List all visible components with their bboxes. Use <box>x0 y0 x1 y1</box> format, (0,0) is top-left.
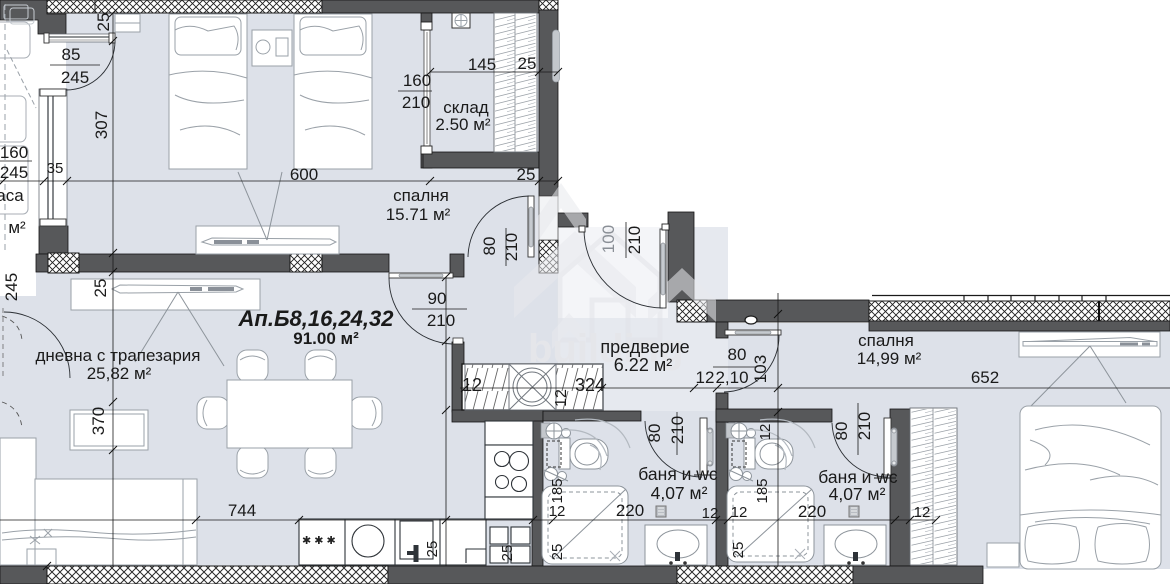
svg-text:12: 12 <box>702 505 719 522</box>
svg-text:12: 12 <box>696 368 715 387</box>
svg-text:25: 25 <box>518 54 537 73</box>
svg-text:спалня: спалня <box>393 186 449 205</box>
svg-text:25: 25 <box>499 545 516 562</box>
svg-text:145: 145 <box>468 55 496 74</box>
svg-text:2,10: 2,10 <box>715 368 748 387</box>
svg-text:25: 25 <box>424 541 441 558</box>
svg-text:25: 25 <box>94 13 113 32</box>
svg-text:220: 220 <box>616 501 644 520</box>
svg-text:25: 25 <box>730 542 747 559</box>
svg-text:100: 100 <box>599 225 618 253</box>
svg-text:80: 80 <box>832 422 851 441</box>
svg-text:210: 210 <box>402 93 430 112</box>
svg-text:25,82 м²: 25,82 м² <box>87 364 152 383</box>
svg-text:220: 220 <box>798 502 826 521</box>
svg-text:160: 160 <box>0 143 28 162</box>
svg-text:80: 80 <box>728 345 747 364</box>
svg-text:✱ ✱ ✱: ✱ ✱ ✱ <box>302 535 336 547</box>
svg-text:370: 370 <box>89 407 108 435</box>
svg-text:25: 25 <box>549 544 566 561</box>
svg-text:160: 160 <box>403 71 431 90</box>
svg-text:307: 307 <box>92 111 111 139</box>
svg-text:баня и wc: баня и wc <box>638 464 718 484</box>
svg-text:спалня: спалня <box>858 331 914 350</box>
svg-text:14,99 м²: 14,99 м² <box>857 349 922 368</box>
svg-text:80: 80 <box>480 237 499 256</box>
svg-text:35: 35 <box>47 160 64 177</box>
svg-text:652: 652 <box>971 368 999 387</box>
svg-text:12: 12 <box>549 503 566 520</box>
svg-text:Ап.Б8,16,24,32: Ап.Б8,16,24,32 <box>238 306 395 331</box>
svg-text:91.00 м²: 91.00 м² <box>293 329 359 348</box>
svg-text:90: 90 <box>428 289 447 308</box>
svg-text:12: 12 <box>914 504 931 521</box>
svg-text:12: 12 <box>462 375 482 395</box>
svg-text:12: 12 <box>731 504 748 521</box>
svg-text:210: 210 <box>427 311 455 330</box>
svg-text:80: 80 <box>645 424 664 443</box>
svg-text:12: 12 <box>757 424 774 441</box>
svg-text:185: 185 <box>549 478 566 503</box>
svg-text:245: 245 <box>2 273 21 301</box>
svg-text:103: 103 <box>751 355 770 383</box>
svg-text:аса: аса <box>0 186 24 205</box>
svg-text:2.50 м²: 2.50 м² <box>435 115 490 134</box>
svg-text:4,07 м²: 4,07 м² <box>651 483 708 503</box>
svg-text:6.22 м²: 6.22 м² <box>614 355 672 375</box>
svg-text:245: 245 <box>0 163 28 182</box>
svg-text:210: 210 <box>668 416 687 444</box>
svg-text:м²: м² <box>8 218 26 237</box>
svg-text:4,07 м²: 4,07 м² <box>829 484 886 504</box>
svg-text:245: 245 <box>61 68 89 87</box>
svg-text:дневна с трапезария: дневна с трапезария <box>36 346 201 365</box>
svg-text:предверие: предверие <box>600 337 689 357</box>
svg-text:185: 185 <box>754 478 771 503</box>
svg-text:210: 210 <box>502 233 521 261</box>
svg-text:210: 210 <box>855 412 874 440</box>
svg-text:744: 744 <box>228 501 256 520</box>
svg-text:600: 600 <box>290 165 318 184</box>
svg-text:210: 210 <box>625 226 644 254</box>
svg-text:25: 25 <box>91 279 110 298</box>
svg-text:85: 85 <box>62 45 81 64</box>
svg-text:324: 324 <box>575 375 605 395</box>
svg-text:12: 12 <box>553 389 570 407</box>
svg-text:25: 25 <box>517 165 536 184</box>
svg-text:15.71 м²: 15.71 м² <box>386 205 451 224</box>
